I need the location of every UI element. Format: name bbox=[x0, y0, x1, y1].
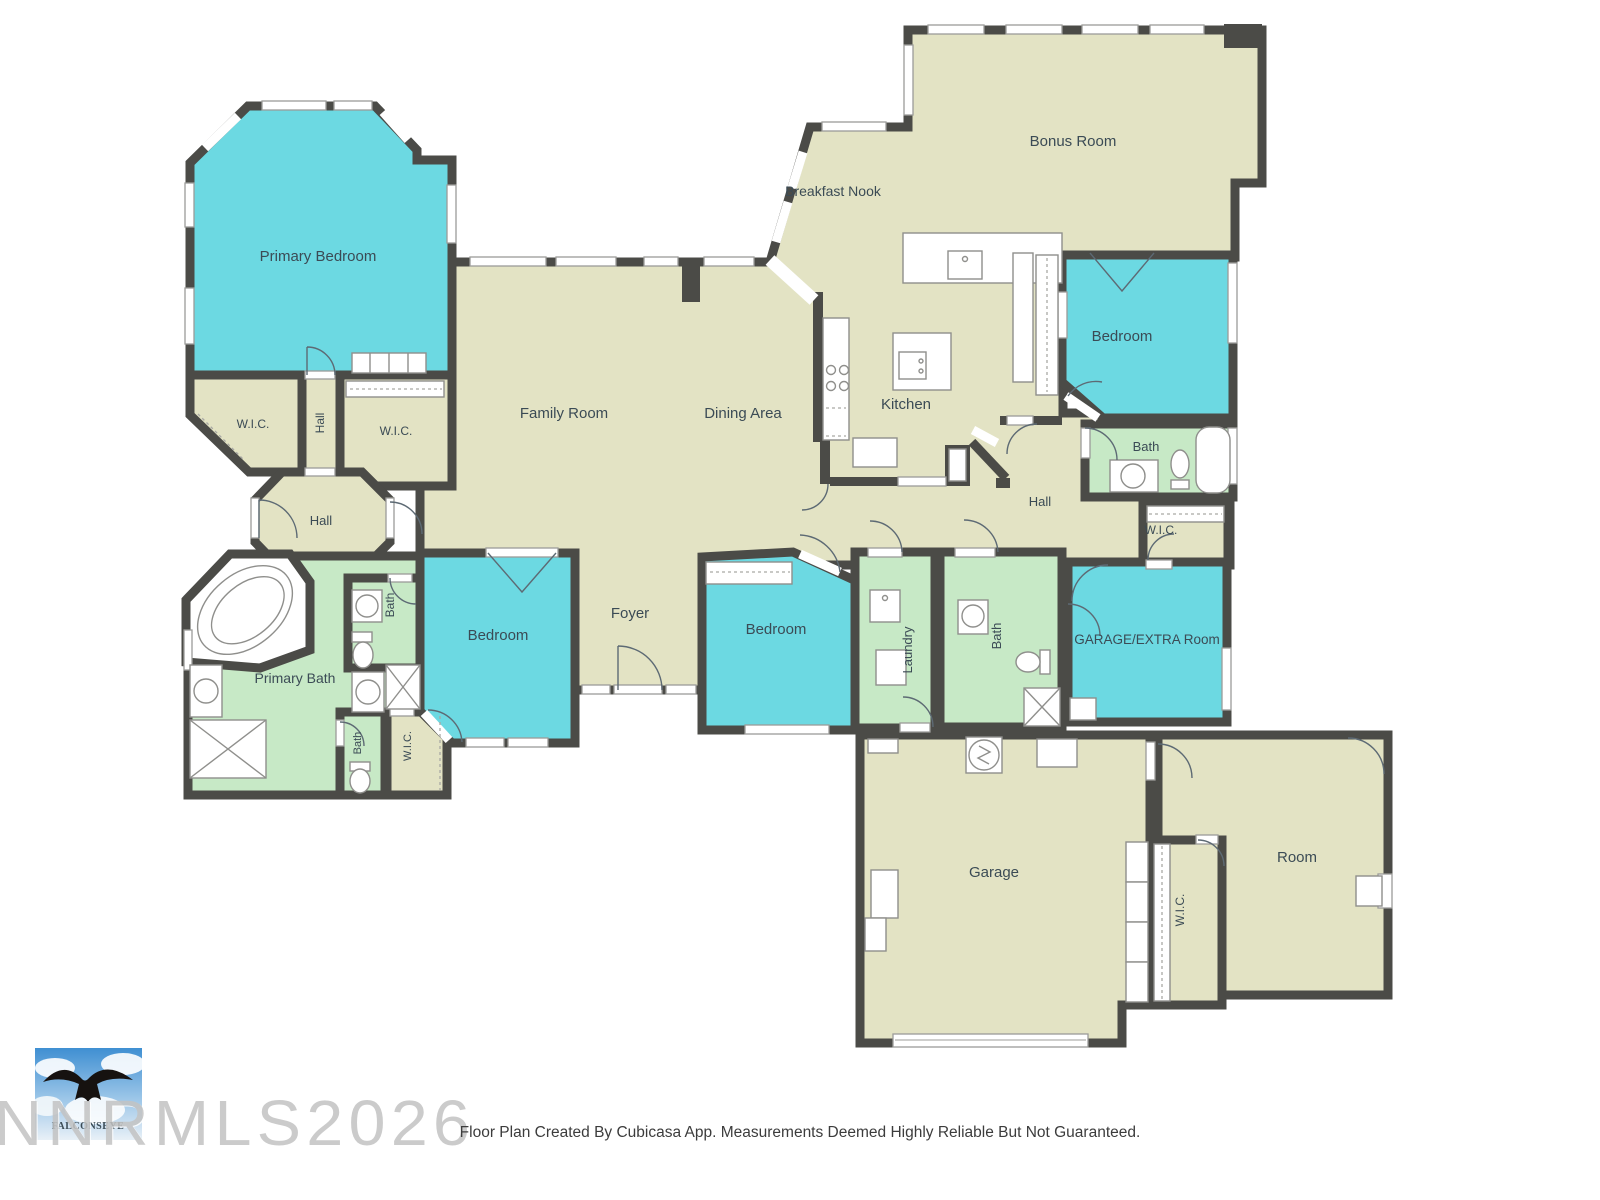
kitchen-counter bbox=[1013, 253, 1033, 382]
sink-icon bbox=[1121, 464, 1145, 488]
garage-shelf bbox=[868, 739, 898, 753]
room-label-wic-bottom-left: W.I.C. bbox=[402, 731, 414, 761]
room-label-bath-bottom: Bath bbox=[352, 732, 364, 755]
built-in-dresser bbox=[352, 353, 426, 373]
storage-cell bbox=[1126, 842, 1148, 882]
garage-shelf bbox=[1037, 739, 1077, 767]
burner bbox=[827, 366, 836, 375]
toilet-tank bbox=[1040, 650, 1050, 674]
shower bbox=[386, 665, 420, 709]
garage-shelf bbox=[865, 918, 886, 951]
appliance bbox=[949, 449, 966, 481]
room-label-hall-vertical: Hall bbox=[313, 413, 327, 434]
room-label-laundry: Laundry bbox=[900, 626, 915, 673]
toilet-tank bbox=[352, 632, 372, 642]
mls-watermark: NNRMLS2026 bbox=[0, 1086, 475, 1160]
room-label-bath-middle: Bath bbox=[989, 623, 1004, 650]
sink-icon bbox=[962, 605, 984, 627]
room-label-primary-bedroom: Primary Bedroom bbox=[260, 248, 377, 265]
room-label-bedroom-middle: Bedroom bbox=[746, 621, 807, 638]
room-label-foyer: Foyer bbox=[611, 605, 649, 622]
room-label-wic-2: W.I.C. bbox=[380, 424, 413, 438]
room-label-garage-extra: GARAGE/EXTRA Room bbox=[1074, 632, 1220, 647]
shower bbox=[190, 720, 266, 778]
room-label-wic-bottom: W.I.C. bbox=[1173, 894, 1187, 927]
wardrobe bbox=[1356, 876, 1382, 906]
faucet bbox=[963, 257, 968, 262]
toilet-tank bbox=[1171, 480, 1189, 489]
room-label-bonus-room: Bonus Room bbox=[1030, 133, 1117, 150]
cooktop bbox=[899, 352, 926, 379]
room-label-room: Room bbox=[1277, 849, 1317, 866]
shower bbox=[1024, 688, 1060, 726]
room-label-bedroom-right: Bedroom bbox=[1092, 328, 1153, 345]
storage-cell bbox=[1126, 882, 1148, 922]
room-label-kitchen: Kitchen bbox=[881, 396, 931, 413]
room-label-garage: Garage bbox=[969, 864, 1019, 881]
closet-shelf bbox=[1154, 844, 1170, 1001]
floor-plan-drawing: Primary Bedroom W.I.C. Hall W.I.C. Hall … bbox=[0, 0, 1600, 1200]
room-bedroom-left bbox=[420, 553, 575, 743]
bathtub-icon bbox=[1196, 427, 1230, 493]
floor-plan-page: Primary Bedroom W.I.C. Hall W.I.C. Hall … bbox=[0, 0, 1600, 1200]
appliance-band bbox=[823, 318, 849, 440]
room-garage bbox=[860, 735, 1150, 1043]
room-label-bedroom-left: Bedroom bbox=[468, 627, 529, 644]
toilet-icon bbox=[1171, 450, 1189, 478]
counter bbox=[853, 438, 897, 467]
room-laundry bbox=[855, 552, 935, 728]
corner-unit bbox=[1070, 698, 1096, 720]
burner bbox=[827, 382, 836, 391]
garage-shelf bbox=[871, 870, 898, 918]
room-label-dining-area: Dining Area bbox=[704, 405, 782, 422]
burner bbox=[840, 382, 849, 391]
room-label-hall-octagon: Hall bbox=[310, 513, 333, 528]
toilet-icon bbox=[1016, 652, 1040, 672]
storage-cell bbox=[1126, 922, 1148, 962]
room-label-breakfast-nook: Breakfast Nook bbox=[785, 183, 882, 199]
room-label-bath-right: Bath bbox=[1133, 439, 1160, 454]
closet-shelf bbox=[706, 562, 792, 584]
room-label-wic-right: W.I.C. bbox=[1145, 523, 1178, 537]
sink-icon bbox=[356, 680, 380, 704]
room-label-primary-bath: Primary Bath bbox=[255, 670, 336, 686]
burner bbox=[840, 366, 849, 375]
toilet-icon bbox=[350, 769, 370, 793]
room-label-wic-left: W.I.C. bbox=[237, 417, 270, 431]
sink-icon bbox=[194, 679, 218, 703]
storage-cell bbox=[1126, 962, 1148, 1002]
room-label-hall-right: Hall bbox=[1029, 494, 1052, 509]
washer-icon bbox=[870, 590, 900, 622]
footer-disclaimer: Floor Plan Created By Cubicasa App. Meas… bbox=[0, 1124, 1600, 1142]
room-label-family-room: Family Room bbox=[520, 405, 608, 422]
room-primary-bedroom bbox=[190, 106, 452, 375]
sink-icon bbox=[356, 595, 378, 617]
kitchen-sink bbox=[948, 251, 982, 279]
toilet-icon bbox=[353, 642, 373, 668]
room-label-bath-suite: Bath bbox=[383, 593, 397, 618]
rooms-layer bbox=[186, 30, 1388, 1043]
